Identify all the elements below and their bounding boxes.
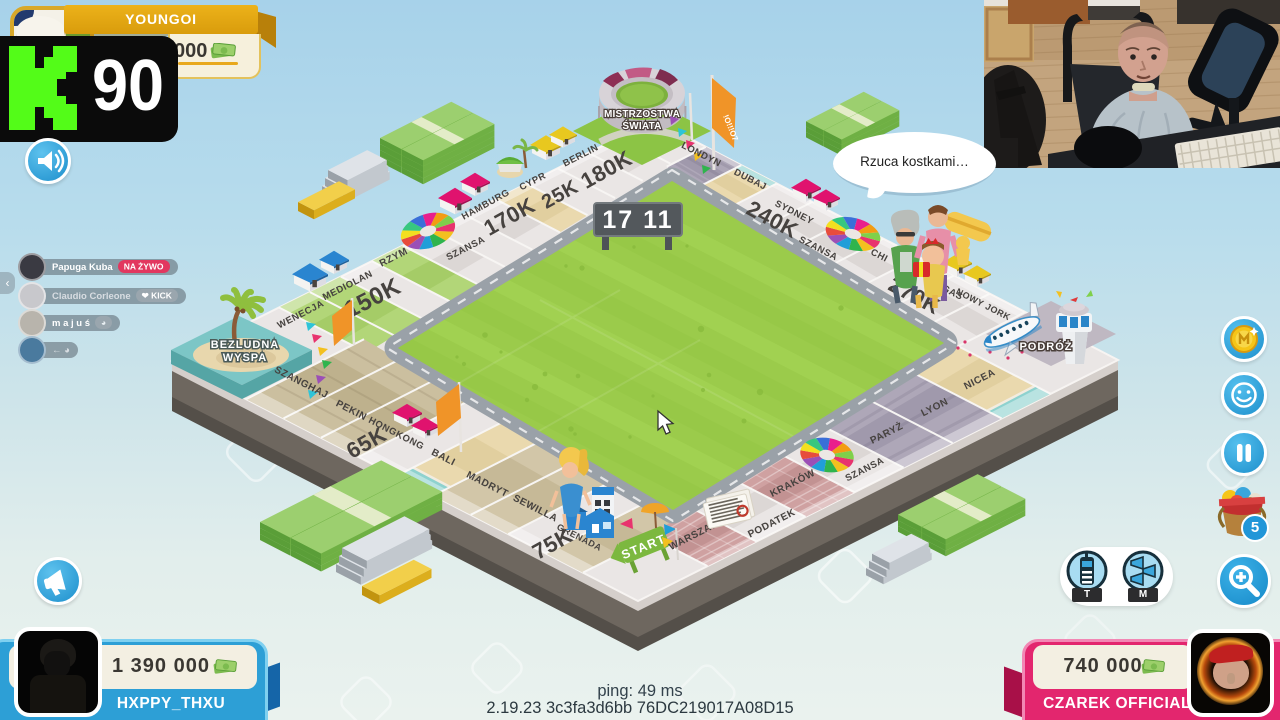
- svg-text:PODRÓŻ: PODRÓŻ: [1019, 340, 1072, 353]
- svg-text:17 11: 17 11: [602, 206, 673, 234]
- svg-text:BEZLUDNA: BEZLUDNA: [211, 339, 280, 351]
- svg-text:WYSPA: WYSPA: [223, 352, 268, 364]
- svg-text:MISTRZOSTWA: MISTRZOSTWA: [604, 109, 680, 120]
- svg-text:ŚWIATA: ŚWIATA: [622, 119, 661, 132]
